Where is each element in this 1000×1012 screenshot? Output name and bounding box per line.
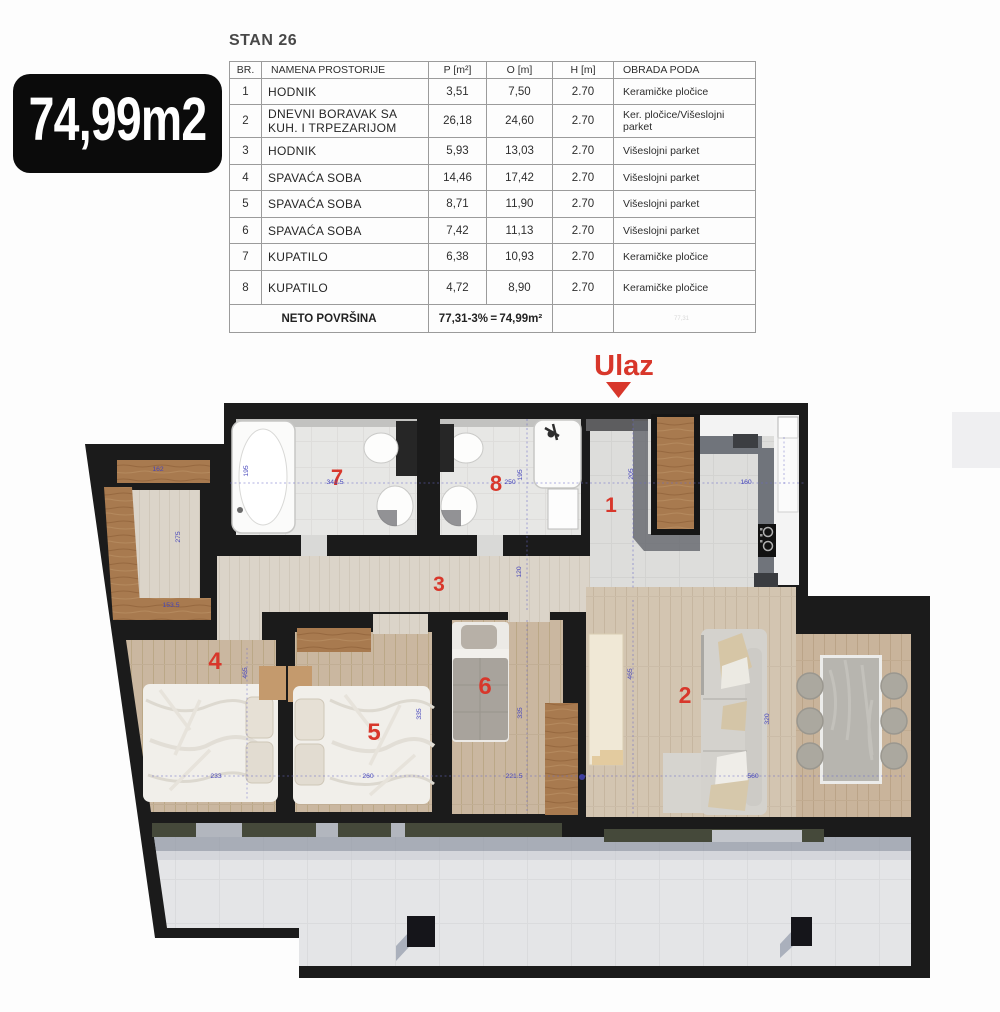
svg-text:3: 3 — [433, 573, 445, 596]
svg-text:465: 465 — [242, 667, 249, 679]
svg-text:160: 160 — [740, 479, 752, 486]
svg-text:560: 560 — [747, 773, 759, 780]
svg-text:1: 1 — [605, 494, 617, 517]
svg-text:465: 465 — [627, 668, 634, 680]
svg-text:205: 205 — [628, 468, 635, 480]
svg-text:275: 275 — [175, 531, 182, 543]
svg-text:4: 4 — [208, 648, 222, 675]
svg-text:Ulaz: Ulaz — [594, 350, 654, 382]
svg-text:8: 8 — [490, 471, 502, 496]
svg-text:7: 7 — [331, 465, 343, 490]
svg-text:162: 162 — [152, 466, 164, 473]
svg-text:195: 195 — [243, 465, 250, 477]
svg-text:335: 335 — [517, 707, 524, 719]
svg-text:6: 6 — [478, 673, 491, 700]
svg-text:233: 233 — [210, 773, 222, 780]
svg-text:320: 320 — [764, 713, 771, 725]
svg-text:221.5: 221.5 — [505, 773, 522, 780]
svg-text:250: 250 — [504, 479, 516, 486]
svg-text:153.5: 153.5 — [162, 602, 179, 609]
svg-text:2: 2 — [679, 682, 692, 708]
svg-text:195: 195 — [517, 469, 524, 481]
svg-text:260: 260 — [362, 773, 374, 780]
svg-text:5: 5 — [367, 719, 380, 746]
svg-text:341.5: 341.5 — [326, 479, 343, 486]
svg-text:335: 335 — [416, 708, 423, 720]
svg-text:120: 120 — [516, 566, 523, 578]
